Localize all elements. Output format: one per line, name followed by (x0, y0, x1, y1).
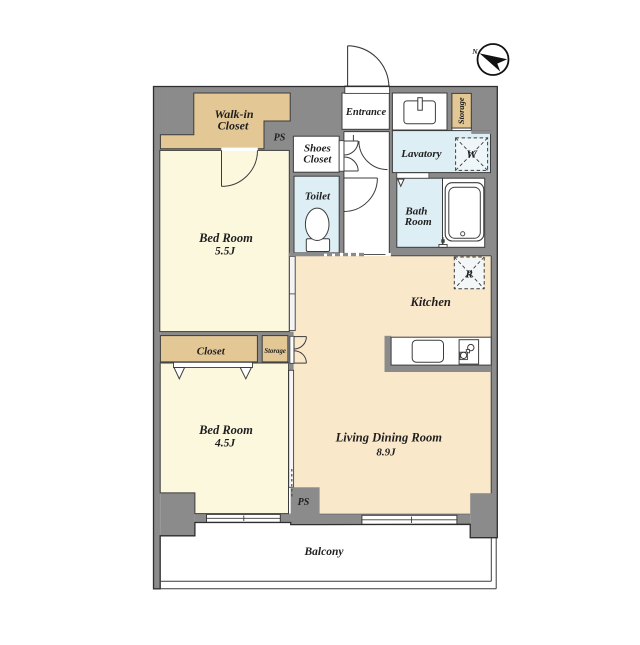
svg-text:R: R (465, 269, 473, 281)
svg-text:Closet: Closet (218, 119, 249, 133)
svg-text:W: W (466, 147, 478, 161)
svg-text:Bed Room: Bed Room (198, 423, 253, 437)
svg-text:5.5J: 5.5J (215, 246, 236, 258)
svg-text:PS: PS (274, 133, 286, 144)
svg-text:Entrance: Entrance (345, 107, 387, 118)
svg-text:Bed Room: Bed Room (198, 231, 253, 245)
svg-text:Storage: Storage (456, 97, 466, 124)
svg-text:8.9J: 8.9J (376, 447, 396, 459)
svg-text:Balcony: Balcony (304, 546, 345, 558)
svg-text:Toilet: Toilet (305, 191, 331, 203)
svg-text:Storage: Storage (264, 348, 286, 355)
svg-text:Closet: Closet (303, 154, 332, 166)
svg-text:Lavatory: Lavatory (400, 148, 441, 160)
svg-text:N: N (471, 47, 478, 56)
svg-text:Living Dining Room: Living Dining Room (335, 431, 443, 445)
svg-text:PS: PS (298, 497, 310, 508)
svg-text:4.5J: 4.5J (214, 438, 236, 450)
svg-text:Kitchen: Kitchen (410, 295, 451, 309)
svg-text:Room: Room (404, 216, 432, 228)
svg-text:Closet: Closet (197, 346, 226, 358)
